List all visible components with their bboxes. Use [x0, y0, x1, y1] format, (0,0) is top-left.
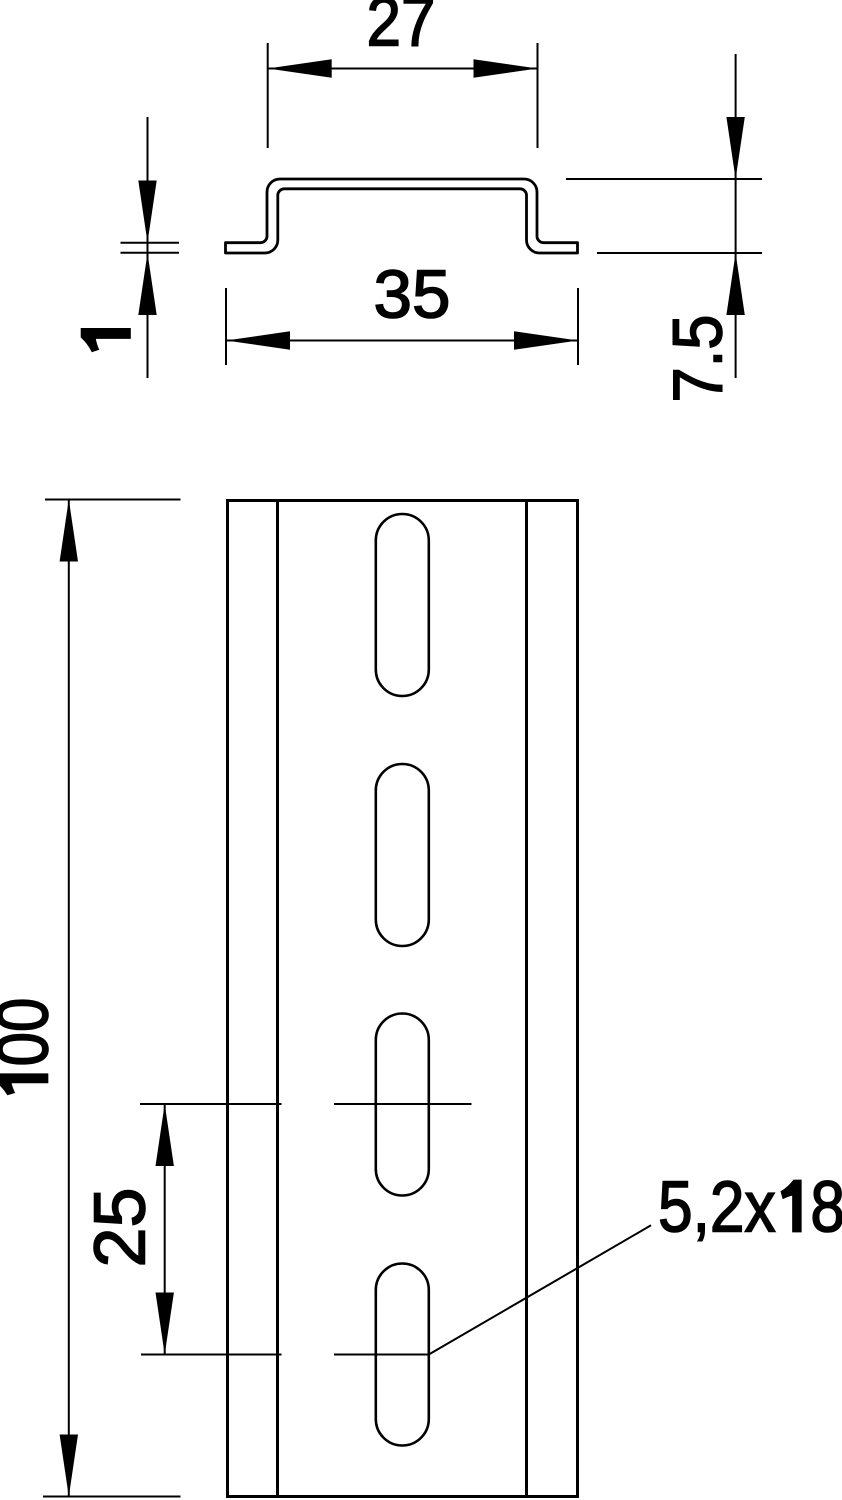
- svg-text:8: 8: [810, 1168, 842, 1248]
- svg-text:5,2x: 5,2x: [658, 1168, 776, 1248]
- svg-text:27: 27: [367, 0, 436, 61]
- svg-text:25: 25: [81, 1188, 161, 1268]
- svg-text:7.5: 7.5: [659, 315, 737, 403]
- svg-text:00: 00: [0, 998, 64, 1067]
- svg-text:35: 35: [374, 257, 451, 333]
